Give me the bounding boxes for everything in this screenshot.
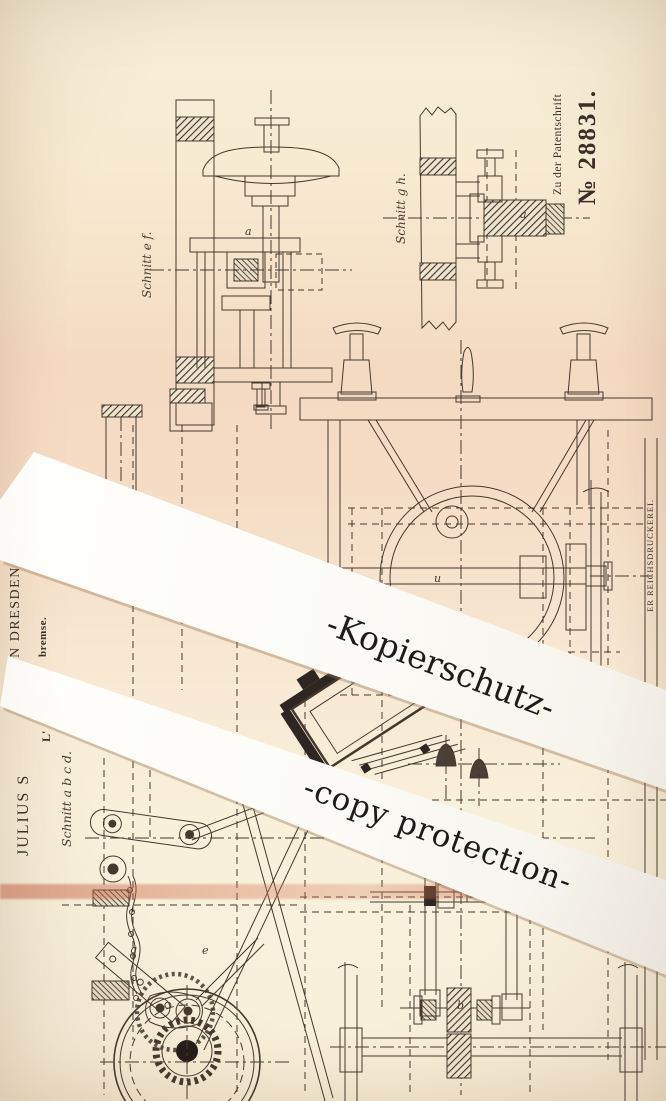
title-end-fragment: bremse. <box>37 617 49 657</box>
figure-section-ef <box>150 90 352 432</box>
applicant-location-fragment: IN DRESDEN. <box>8 561 24 664</box>
section-label-ef: Schnitt e f. <box>140 232 154 298</box>
part-letter: a <box>245 225 252 238</box>
title-initial-fragment: L' <box>39 731 54 742</box>
part-letter: a <box>520 208 527 221</box>
patent-number: № 28831. <box>574 89 602 205</box>
patent-series-label: Zu der Patentschrift <box>552 94 564 195</box>
section-label-gh: Schnitt g h. <box>394 173 408 244</box>
patent-photo: Zu der Patentschrift № 28831. IN DRESDEN… <box>0 0 666 1101</box>
printer-note-upper-fragment: ER REICHSDRUCKEREI. <box>645 499 655 612</box>
applicant-name-fragment: JULIUS S <box>15 774 33 856</box>
part-letter: b <box>457 999 464 1012</box>
part-letter: e <box>202 944 209 957</box>
part-letter: g <box>130 943 137 956</box>
section-label-abcd: Schnitt a b c d. <box>59 751 74 847</box>
part-letter: u <box>434 572 441 585</box>
